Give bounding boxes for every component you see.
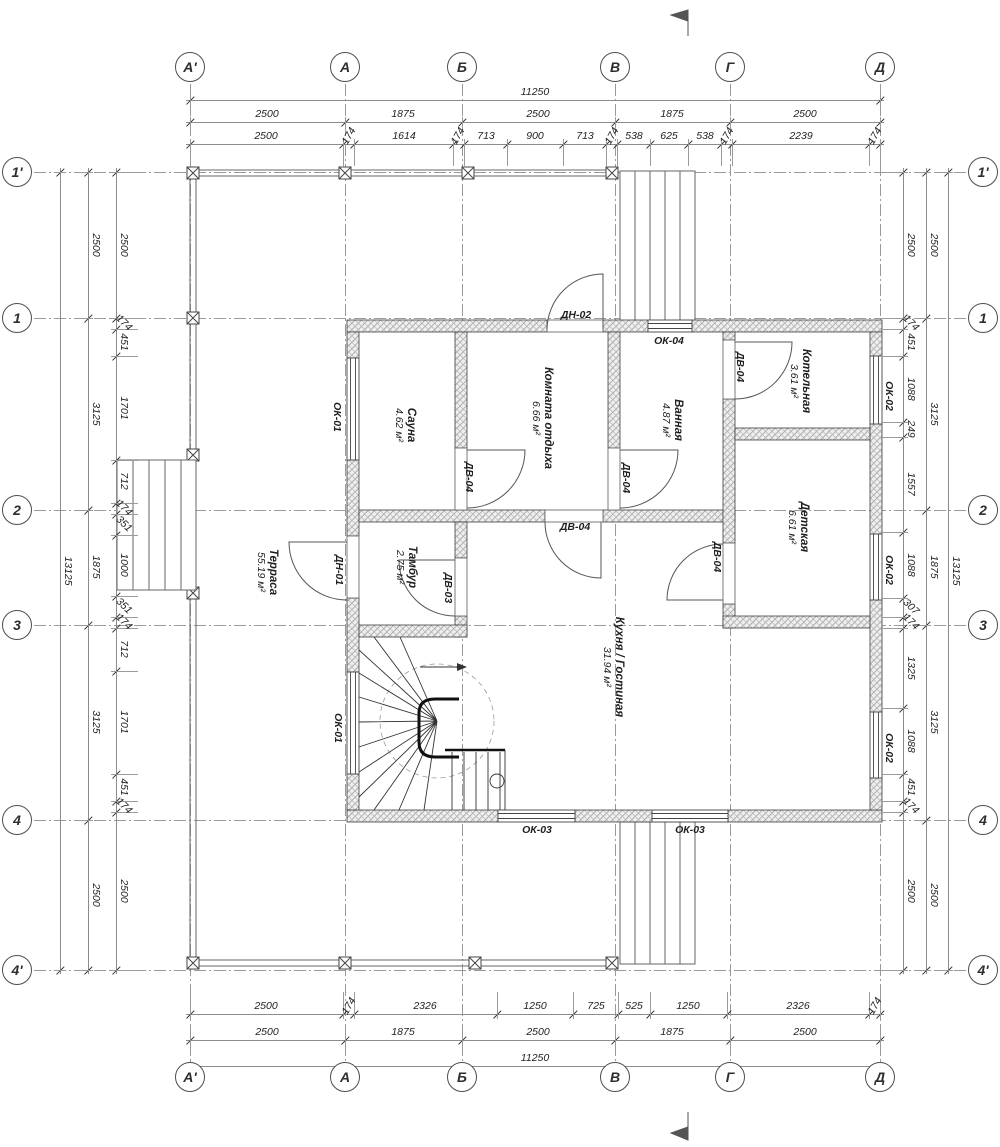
dim-extension: [120, 774, 138, 775]
dim-label: 451: [905, 778, 917, 796]
room-label: Кухня / Гостиная31.94 м²: [601, 617, 625, 717]
dim-extension: [120, 535, 138, 536]
staircase: [359, 637, 505, 810]
dim-label: 1701: [118, 396, 130, 419]
dim-label: 713: [477, 130, 495, 142]
dim-label: 2500: [118, 879, 130, 902]
dim-extension: [732, 148, 733, 166]
dim-extension: [120, 460, 138, 461]
room-label: Комната отдыха6.66 м²: [530, 367, 554, 469]
room-name: Котельная: [800, 349, 812, 413]
dim-label: 2239: [789, 130, 812, 142]
opening-tag: ДВ-04: [463, 462, 475, 492]
dim-line-bottom-grid: [186, 1040, 884, 1041]
dim-ext-stub: [880, 95, 881, 105]
room-name: Сауна: [405, 408, 417, 443]
dim-extension: [120, 970, 138, 971]
dim-label: 538: [625, 130, 643, 142]
axis-bubble: В: [600, 1062, 630, 1092]
dim-extension: [507, 148, 508, 166]
opening-tag: ДВ-04: [560, 521, 590, 533]
dim-label: 1250: [523, 1000, 546, 1012]
dim-label: 3125: [90, 710, 102, 733]
dim-label: 2500: [928, 883, 940, 906]
dim-extension: [120, 671, 138, 672]
room-name: Комната отдыха: [542, 367, 554, 469]
dim-label: 249: [905, 420, 917, 438]
dim-extension: [563, 148, 564, 166]
axis-bubble: 1: [2, 303, 32, 333]
dim-label: 1875: [928, 555, 940, 578]
dim-extension: [881, 708, 899, 709]
dim-label: 2500: [793, 1026, 816, 1038]
axis-bubble: 2: [968, 495, 998, 525]
dim-label: 11250: [521, 86, 549, 98]
opening-tag: ОК-04: [654, 335, 684, 347]
opening-tag: ДН-01: [333, 555, 345, 585]
dim-extension: [727, 992, 728, 1010]
dim-label: 1088: [905, 377, 917, 400]
axis-bubble: 2: [2, 495, 32, 525]
dim-ext-stub: [83, 510, 93, 511]
stair-post: [490, 774, 504, 788]
dim-ext-stub: [898, 812, 908, 813]
room-label: Терраса55.19 м²: [255, 549, 279, 595]
room-area: 4.62 м²: [393, 408, 405, 443]
dim-ext-stub: [730, 117, 731, 127]
room-area: 55.19 м²: [255, 549, 267, 595]
dim-extension: [881, 812, 899, 813]
dim-label: 2500: [255, 108, 278, 120]
dim-line-top-detail: [186, 144, 884, 145]
dim-extension: [881, 617, 899, 618]
dim-extension: [190, 148, 191, 166]
dim-label: 2500: [905, 233, 917, 256]
dim-extension: [618, 992, 619, 1010]
dim-label: 2500: [526, 108, 549, 120]
dim-ext-stub: [943, 970, 953, 971]
dim-extension: [606, 148, 607, 166]
dim-ext-stub: [943, 172, 953, 173]
dim-ext-stub: [880, 1009, 881, 1019]
dim-extension: [881, 356, 899, 357]
dim-label: 2326: [786, 1000, 809, 1012]
opening-tag: ДВ-04: [711, 542, 723, 572]
dim-label: 2500: [905, 879, 917, 902]
dim-ext-stub: [354, 1009, 355, 1019]
dim-line-right-detail: [903, 168, 904, 974]
dim-label: 900: [526, 130, 544, 142]
dim-ext-stub: [55, 172, 65, 173]
room-area: 6.66 м²: [530, 367, 542, 469]
dim-label: 2500: [254, 130, 277, 142]
dim-ext-stub: [898, 708, 908, 709]
room-label: Сауна4.62 м²: [393, 408, 417, 443]
axis-bubble: 1: [968, 303, 998, 333]
dim-line-right-total: [948, 168, 949, 974]
dim-line-bottom-detail: [186, 1014, 884, 1015]
dim-label: 1088: [905, 729, 917, 752]
dim-ext-stub: [921, 970, 931, 971]
dim-ext-stub: [898, 970, 908, 971]
section-mark-bottom: [671, 1112, 688, 1140]
dim-label: 712: [118, 640, 130, 658]
dim-extension: [881, 970, 899, 971]
dim-ext-stub: [55, 970, 65, 971]
dim-extension: [688, 148, 689, 166]
dim-extension: [120, 172, 138, 173]
axis-bubble: 1': [968, 157, 998, 187]
axis-bubble: 4': [968, 955, 998, 985]
dim-line-left-grid: [88, 168, 89, 974]
room-area: 4.87 м²: [660, 399, 672, 441]
dim-ext-stub: [898, 774, 908, 775]
room-name: Терраса: [267, 549, 279, 595]
dim-ext-stub: [345, 117, 346, 127]
dim-extension: [120, 356, 138, 357]
dim-label: 2500: [118, 233, 130, 256]
door-dv04-sauna: [467, 450, 525, 508]
dim-ext-stub: [898, 532, 908, 533]
dim-label: 13125: [62, 556, 74, 585]
axis-bubble: 4': [2, 955, 32, 985]
dim-extension: [881, 801, 899, 802]
axis-bubble: Г: [715, 1062, 745, 1092]
dim-ext-stub: [921, 318, 931, 319]
dim-ext-stub: [83, 970, 93, 971]
opening-tag: ОК-03: [522, 824, 552, 836]
axis-bubble: А': [175, 52, 205, 82]
dim-extension: [650, 148, 651, 166]
room-label: Котельная3.61 м²: [788, 349, 812, 413]
dim-extension: [881, 437, 899, 438]
axis-bubble: 4: [2, 805, 32, 835]
dim-ext-stub: [880, 1035, 881, 1045]
opening-tag: ДВ-03: [442, 573, 454, 603]
dim-ext-stub: [497, 1009, 498, 1019]
dim-label: 538: [696, 130, 714, 142]
dim-label: 2500: [793, 108, 816, 120]
dim-ext-stub: [462, 117, 463, 127]
dim-ext-stub: [190, 1009, 191, 1019]
axis-bubble: А': [175, 1062, 205, 1092]
dim-extension: [354, 148, 355, 166]
room-area: 31.94 м²: [601, 617, 613, 717]
room-label: Детская6.61 м²: [786, 502, 810, 552]
dim-label: 1000: [118, 553, 130, 576]
dim-ext-stub: [83, 625, 93, 626]
opening-tag: ОК-01: [331, 402, 343, 432]
dim-label: 1614: [392, 130, 415, 142]
dim-ext-stub: [615, 1035, 616, 1045]
dim-extension: [881, 329, 899, 330]
dim-label: 712: [118, 472, 130, 490]
dim-extension: [464, 148, 465, 166]
room-name: Тамбур: [406, 546, 418, 588]
dim-extension: [880, 148, 881, 166]
dim-ext-stub: [921, 510, 931, 511]
dim-label: 625: [660, 130, 678, 142]
dim-label: 3125: [928, 402, 940, 425]
dim-ext-stub: [898, 628, 908, 629]
dim-label: 1875: [660, 1026, 683, 1038]
section-mark-top: [671, 10, 688, 36]
axis-bubble: Г: [715, 52, 745, 82]
dim-ext-stub: [83, 820, 93, 821]
dim-ext-stub: [898, 356, 908, 357]
dim-ext-stub: [921, 172, 931, 173]
dim-extension: [881, 628, 899, 629]
dim-extension: [190, 992, 191, 1010]
dim-ext-stub: [898, 329, 908, 330]
dim-ext-stub: [898, 172, 908, 173]
room-name: Кухня / Гостиная: [613, 617, 625, 717]
dim-ext-stub: [190, 117, 191, 127]
dim-line-top-grid: [186, 122, 884, 123]
dim-label: 11250: [521, 1052, 549, 1064]
dim-label: 2500: [526, 1026, 549, 1038]
room-area: 6.61 м²: [786, 502, 798, 552]
dim-line-left-detail: [116, 168, 117, 974]
dim-label: 451: [905, 333, 917, 351]
axis-bubble: Б: [447, 1062, 477, 1092]
dim-extension: [617, 148, 618, 166]
dim-ext-stub: [345, 1035, 346, 1045]
axis-bubble: В: [600, 52, 630, 82]
dim-ext-stub: [921, 625, 931, 626]
dim-label: 525: [625, 1000, 643, 1012]
dim-label: 1701: [118, 710, 130, 733]
dim-label: 1875: [391, 1026, 414, 1038]
dim-ext-stub: [190, 95, 191, 105]
axis-bubble: Б: [447, 52, 477, 82]
dim-ext-stub: [190, 1035, 191, 1045]
axis-bubble: Д: [865, 52, 895, 82]
dim-extension: [881, 774, 899, 775]
room-area: 2.75 м²: [394, 546, 406, 588]
dim-ext-stub: [83, 318, 93, 319]
plan-drawing: [0, 0, 1000, 1147]
room-name: Ванная: [672, 399, 684, 441]
floor-plan-canvas: А'А'ААББВВГГДД1'1'112233444'4'1125025001…: [0, 0, 1000, 1147]
dim-ext-stub: [573, 1009, 574, 1019]
dim-extension: [869, 148, 870, 166]
dim-extension: [497, 992, 498, 1010]
dim-extension: [343, 148, 344, 166]
dim-extension: [881, 532, 899, 533]
deck-steps-bottom-right: [620, 822, 695, 964]
dim-line-top-total: [186, 100, 884, 101]
dim-line-left-total: [60, 168, 61, 974]
dim-label: 13125: [950, 556, 962, 585]
dim-extension: [881, 172, 899, 173]
dim-label: 1875: [660, 108, 683, 120]
dim-extension: [881, 598, 899, 599]
dim-extension: [881, 318, 899, 319]
room-area: 3.61 м²: [788, 349, 800, 413]
dim-label: 1557: [905, 472, 917, 495]
dim-ext-stub: [615, 117, 616, 127]
dim-label: 2326: [413, 1000, 436, 1012]
dim-label: 2500: [255, 1026, 278, 1038]
dim-extension: [721, 148, 722, 166]
dim-extension: [881, 422, 899, 423]
opening-tag: ОК-02: [883, 381, 895, 411]
dim-label: 1250: [676, 1000, 699, 1012]
dim-label: 1875: [90, 555, 102, 578]
dim-extension: [453, 148, 454, 166]
dim-label: 1875: [391, 108, 414, 120]
dim-line-bottom-total: [186, 1066, 884, 1067]
room-name: Детская: [798, 502, 810, 552]
room-label: Тамбур2.75 м²: [394, 546, 418, 588]
dim-extension: [650, 992, 651, 1010]
opening-tag: ОК-01: [332, 713, 344, 743]
dim-ext-stub: [880, 117, 881, 127]
opening-tag: ОК-03: [675, 824, 705, 836]
dim-label: 2500: [90, 883, 102, 906]
dim-label: 1325: [905, 656, 917, 679]
deck-steps-top-right: [620, 171, 695, 326]
axis-bubble: Д: [865, 1062, 895, 1092]
dim-ext-stub: [83, 172, 93, 173]
dim-label: 725: [587, 1000, 605, 1012]
dim-label: 2500: [928, 233, 940, 256]
dim-label: 3125: [928, 710, 940, 733]
dim-label: 3125: [90, 402, 102, 425]
dim-extension: [573, 992, 574, 1010]
dim-ext-stub: [618, 1009, 619, 1019]
dim-label: 451: [118, 333, 130, 351]
dim-ext-stub: [921, 820, 931, 821]
dim-ext-stub: [462, 1035, 463, 1045]
opening-tag: ОК-02: [883, 555, 895, 585]
axis-bubble: 3: [968, 610, 998, 640]
axis-bubble: 1': [2, 157, 32, 187]
opening-tag: ОК-02: [883, 733, 895, 763]
axis-bubble: 3: [2, 610, 32, 640]
opening-tag: ДВ-04: [734, 352, 746, 382]
axis-bubble: 4: [968, 805, 998, 835]
room-label: Ванная4.87 м²: [660, 399, 684, 441]
dim-label: 2500: [90, 233, 102, 256]
opening-tag: ДН-02: [561, 309, 591, 321]
axis-bubble: А: [330, 52, 360, 82]
dim-label: 2500: [254, 1000, 277, 1012]
dim-label: 1088: [905, 553, 917, 576]
dim-label: 713: [576, 130, 594, 142]
dim-ext-stub: [650, 1009, 651, 1019]
dim-line-right-grid: [926, 168, 927, 974]
dim-ext-stub: [730, 1035, 731, 1045]
dim-label: 451: [118, 778, 130, 796]
opening-tag: ДВ-04: [620, 463, 632, 493]
dim-ext-stub: [727, 1009, 728, 1019]
axis-bubble: А: [330, 1062, 360, 1092]
